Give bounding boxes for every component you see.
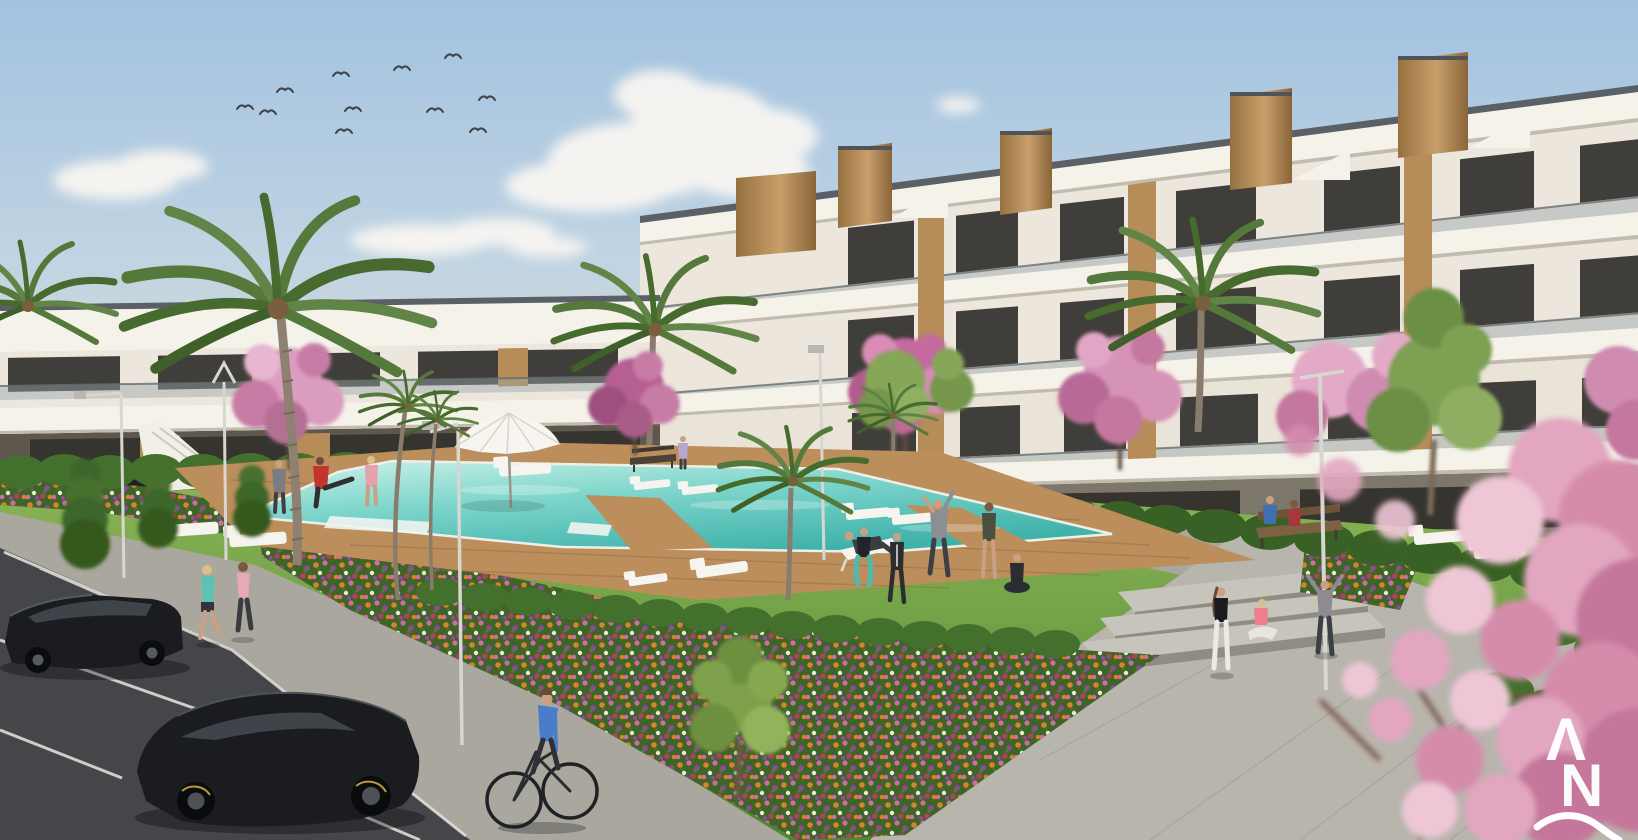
- scene-canvas: Λ N: [0, 0, 1638, 840]
- watermark-letter-bottom: N: [1560, 752, 1603, 819]
- render-image: Λ N: [0, 0, 1638, 840]
- car-sedan: [0, 595, 190, 680]
